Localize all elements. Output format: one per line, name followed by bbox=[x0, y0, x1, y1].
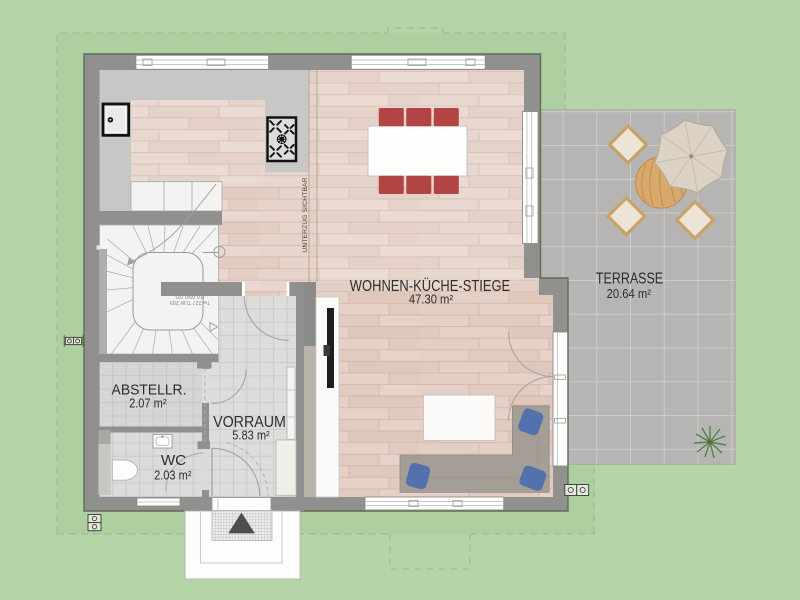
svg-text:WC: WC bbox=[161, 452, 186, 469]
svg-text:20.64 m²: 20.64 m² bbox=[607, 286, 651, 301]
svg-text:UNTERZUG SICHTBAR: UNTERZUG SICHTBAR bbox=[302, 177, 309, 252]
svg-text:5.83 m²: 5.83 m² bbox=[232, 428, 269, 443]
svg-text:47.30 m²: 47.30 m² bbox=[409, 292, 453, 307]
svg-text:2.07 m²: 2.07 m² bbox=[129, 396, 166, 411]
svg-text:2.03 m²: 2.03 m² bbox=[154, 468, 191, 483]
